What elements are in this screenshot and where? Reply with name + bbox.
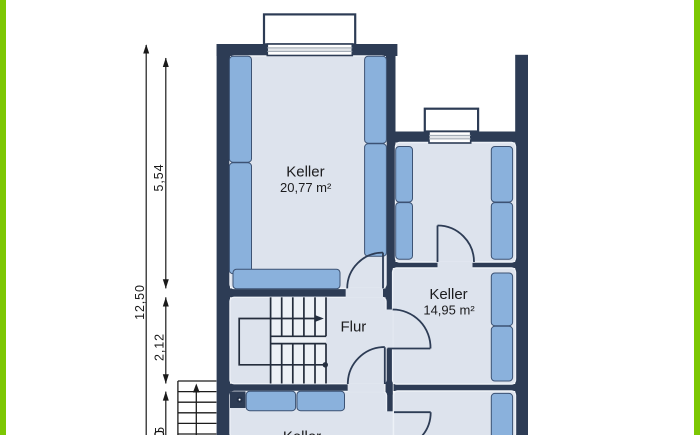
svg-text:20,77 m²: 20,77 m² xyxy=(280,180,332,195)
svg-text:Keller: Keller xyxy=(283,429,321,435)
svg-text:Flur: Flur xyxy=(340,319,366,336)
svg-text:2,12: 2,12 xyxy=(153,333,167,361)
svg-text:Keller: Keller xyxy=(286,163,324,180)
svg-text:5,54: 5,54 xyxy=(152,164,166,192)
svg-text:Keller: Keller xyxy=(429,286,467,303)
svg-text:14,95 m²: 14,95 m² xyxy=(423,302,475,317)
svg-text:12,50: 12,50 xyxy=(133,284,147,320)
